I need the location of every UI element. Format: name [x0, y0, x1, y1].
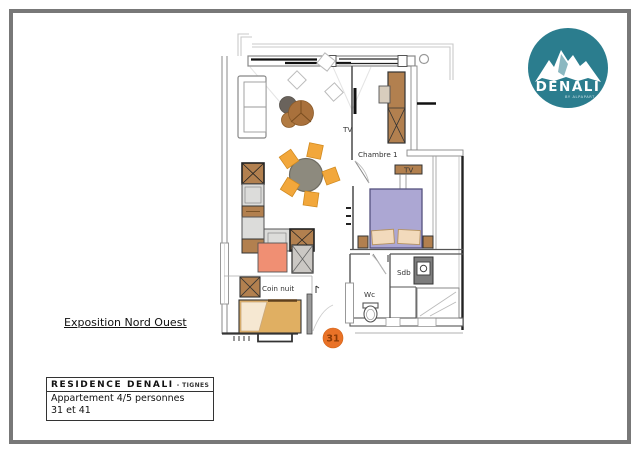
nightstand-left	[358, 236, 368, 248]
sdb-label: Sdb	[397, 268, 411, 277]
chambre-1-label: Chambre 1	[358, 150, 398, 159]
window-swing-marks	[250, 67, 371, 110]
single-bed	[239, 300, 301, 333]
wall-shelf	[240, 277, 260, 297]
window-wall	[248, 55, 429, 67]
nightstand-right	[423, 236, 433, 248]
tv-label-bedroom: TV	[403, 166, 413, 175]
poufs	[280, 97, 314, 128]
coin-nuit-table	[258, 243, 287, 272]
wardrobe	[379, 72, 405, 143]
tv-label-living: TV	[342, 125, 352, 134]
wc-label: Wc	[364, 290, 375, 299]
door-number-badge: 31	[323, 328, 343, 348]
tv-living	[354, 88, 357, 114]
gray-cabinet	[292, 245, 313, 273]
toilet	[363, 303, 378, 322]
sofa	[238, 76, 266, 138]
door-number-text: 31	[326, 334, 339, 345]
double-bed	[370, 189, 422, 248]
sink	[414, 257, 433, 284]
coin-nuit-label: Coin nuit	[262, 284, 294, 293]
floor-plan: TV Chambre 1 TV Sdb Wc Coin nuit 31	[0, 0, 640, 453]
column-circle	[420, 55, 429, 64]
shower	[417, 288, 459, 318]
